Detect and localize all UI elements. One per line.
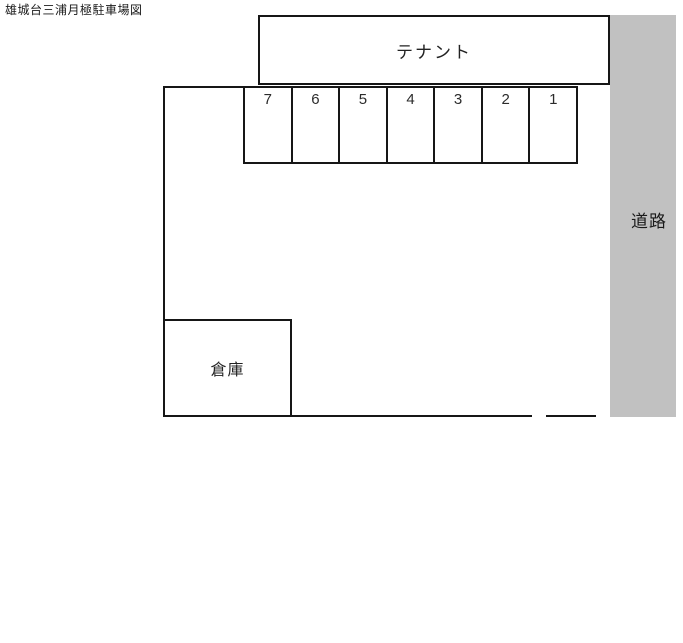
parking-space-number: 4 [406,91,414,108]
road-label: 道路 [610,207,676,232]
parking-space-2: 2 [483,88,531,162]
page-title: 雄城台三浦月極駐車場図 [5,3,143,17]
tenant-building-box: テナント [258,15,610,85]
warehouse-box: 倉庫 [163,319,292,417]
lot-top-boundary-line [163,86,245,88]
warehouse-label: 倉庫 [210,356,244,380]
parking-space-number: 5 [359,91,367,108]
lot-bottom-boundary-segment [546,415,596,417]
parking-space-5: 5 [340,88,388,162]
tenant-label: テナント [396,38,472,63]
parking-space-7: 7 [245,88,293,162]
parking-space-number: 2 [502,91,510,108]
parking-space-number: 3 [454,91,462,108]
parking-space-number: 6 [311,91,319,108]
parking-space-3: 3 [435,88,483,162]
parking-space-4: 4 [388,88,436,162]
road-area: 道路 [610,15,676,417]
parking-spaces-row: 7 6 5 4 3 2 1 [243,86,578,164]
parking-lot-diagram: 雄城台三浦月極駐車場図 テナント 道路 7 6 5 4 3 2 1 [0,0,683,643]
parking-space-number: 7 [264,91,272,108]
parking-space-6: 6 [293,88,341,162]
parking-space-1: 1 [530,88,576,162]
parking-space-number: 1 [549,91,557,108]
